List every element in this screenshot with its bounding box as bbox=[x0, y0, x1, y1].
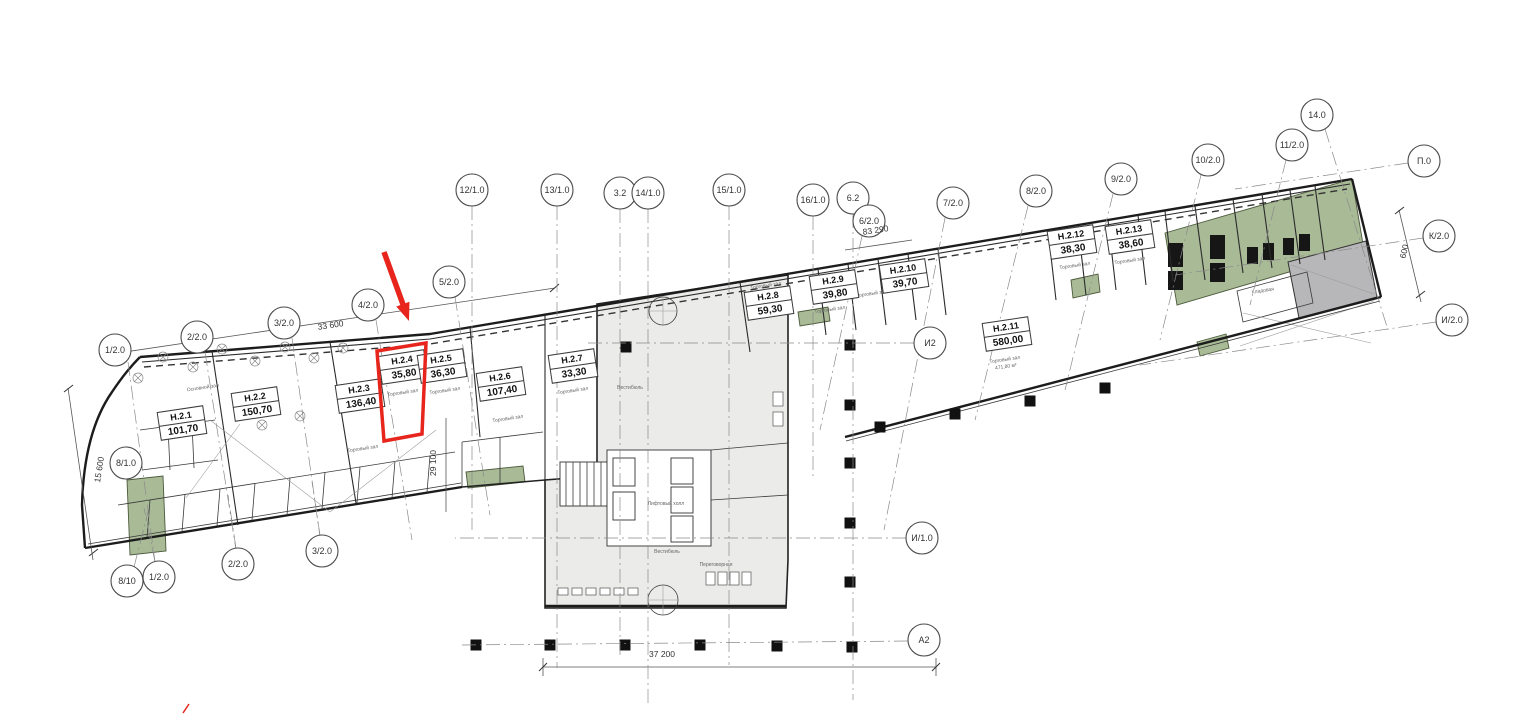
elevator-shaft bbox=[613, 492, 635, 520]
chair bbox=[614, 588, 624, 595]
column bbox=[875, 422, 886, 433]
escalator-block bbox=[1247, 247, 1258, 264]
axis-bubble-label: 13/1.0 bbox=[544, 185, 569, 195]
axis-bubble-label: 3.2 bbox=[614, 188, 627, 198]
column bbox=[950, 409, 961, 420]
axis-bubble-label: 3/2.0 bbox=[312, 546, 332, 556]
room-sublabel: Вестибюль bbox=[617, 385, 643, 391]
axis-bubble-label: 12/1.0 bbox=[459, 185, 484, 195]
elevator-shaft bbox=[671, 458, 693, 484]
chair bbox=[628, 588, 638, 595]
furniture bbox=[773, 412, 783, 426]
axis-bubble-label: 16/1.0 bbox=[800, 195, 825, 205]
column bbox=[845, 340, 856, 351]
escalator-block bbox=[1210, 235, 1225, 259]
chair bbox=[706, 572, 715, 585]
axis-grid-line bbox=[462, 641, 908, 645]
stair-block bbox=[560, 462, 612, 506]
axis-bubble-label: 14/1.0 bbox=[635, 188, 660, 198]
column bbox=[695, 640, 706, 651]
column bbox=[1100, 383, 1111, 394]
escalator-block bbox=[1283, 238, 1294, 255]
axis-bubble-label: 3/2.0 bbox=[274, 318, 294, 328]
chair bbox=[718, 572, 727, 585]
axis-bubble-label: И/1.0 bbox=[911, 533, 932, 543]
chair bbox=[572, 588, 582, 595]
elevator-shaft bbox=[613, 458, 635, 486]
escalator-block bbox=[1299, 234, 1310, 251]
axis-bubble-label: 4/2.0 bbox=[358, 300, 378, 310]
dimension-text: 37 200 bbox=[649, 649, 675, 659]
axis-bubble-label: 11/2.0 bbox=[1280, 140, 1304, 150]
axis-8/1.0: 8/1.0 bbox=[110, 447, 142, 479]
column bbox=[545, 640, 556, 651]
chair bbox=[558, 588, 568, 595]
chair bbox=[600, 588, 610, 595]
axis-bubble-label: 14.0 bbox=[1308, 110, 1326, 120]
axis-bubble-label: 8/10 bbox=[118, 576, 136, 586]
red-corner-mark bbox=[183, 704, 189, 713]
escalator-block bbox=[1210, 263, 1225, 282]
floor-plan-svg: 1/2.02/2.03/2.04/2.05/2.012/1.013/1.03.2… bbox=[0, 0, 1517, 723]
axis-bubble-label: 8/1.0 bbox=[116, 458, 136, 468]
column bbox=[845, 577, 856, 588]
axis-bubble-label: 8/2.0 bbox=[1026, 186, 1046, 196]
green-room-tail bbox=[127, 476, 166, 555]
axis-bubble-label: К/2.0 bbox=[1429, 231, 1449, 241]
axis-bubble-label: А2 bbox=[918, 635, 929, 645]
column bbox=[845, 400, 856, 411]
furniture bbox=[773, 392, 783, 406]
building-structure bbox=[64, 179, 1425, 676]
room-sublabel: Лифтовый холл bbox=[648, 500, 685, 507]
column bbox=[845, 518, 856, 529]
axis-bubble-label: 5/2.0 bbox=[439, 277, 459, 287]
elevator-shaft bbox=[671, 487, 693, 513]
axis-bubble-label: 1/2.0 bbox=[149, 572, 169, 582]
column bbox=[620, 640, 631, 651]
chair bbox=[730, 572, 739, 585]
column bbox=[847, 642, 858, 653]
axis-bubble-label: П.0 bbox=[1417, 156, 1431, 166]
axis-bubble-label: 1/2.0 bbox=[105, 345, 125, 355]
dimension-text: 29 100 bbox=[428, 450, 438, 476]
floor-plan-canvas: 1/2.02/2.03/2.04/2.05/2.012/1.013/1.03.2… bbox=[0, 0, 1517, 723]
axis-bubble-label: И/2.0 bbox=[1441, 315, 1462, 325]
axis-bubble-label: 7/2.0 bbox=[943, 198, 963, 208]
room-sublabel: Переговорная bbox=[700, 562, 733, 568]
column bbox=[845, 458, 856, 469]
chair bbox=[742, 572, 751, 585]
chair bbox=[586, 588, 596, 595]
axis-bubble-label: 15/1.0 bbox=[716, 185, 741, 195]
axis-bubble-label: 2/2.0 bbox=[228, 559, 248, 569]
axis-bubble-label: 2/2.0 bbox=[187, 332, 207, 342]
highlight-arrow-shaft bbox=[384, 252, 404, 308]
axis-bubble-label: 6.2 bbox=[847, 193, 860, 203]
axis-bubble-label: 9/2.0 bbox=[1111, 174, 1131, 184]
dim-line-37200 bbox=[543, 658, 936, 676]
dimension-text: 600 bbox=[1398, 243, 1411, 259]
axis-bubble-label: И2 bbox=[924, 338, 935, 348]
room-sublabel: Вестибюль bbox=[654, 549, 680, 555]
column bbox=[1025, 396, 1036, 407]
axis-bubble-label: 10/2.0 bbox=[1195, 155, 1220, 165]
